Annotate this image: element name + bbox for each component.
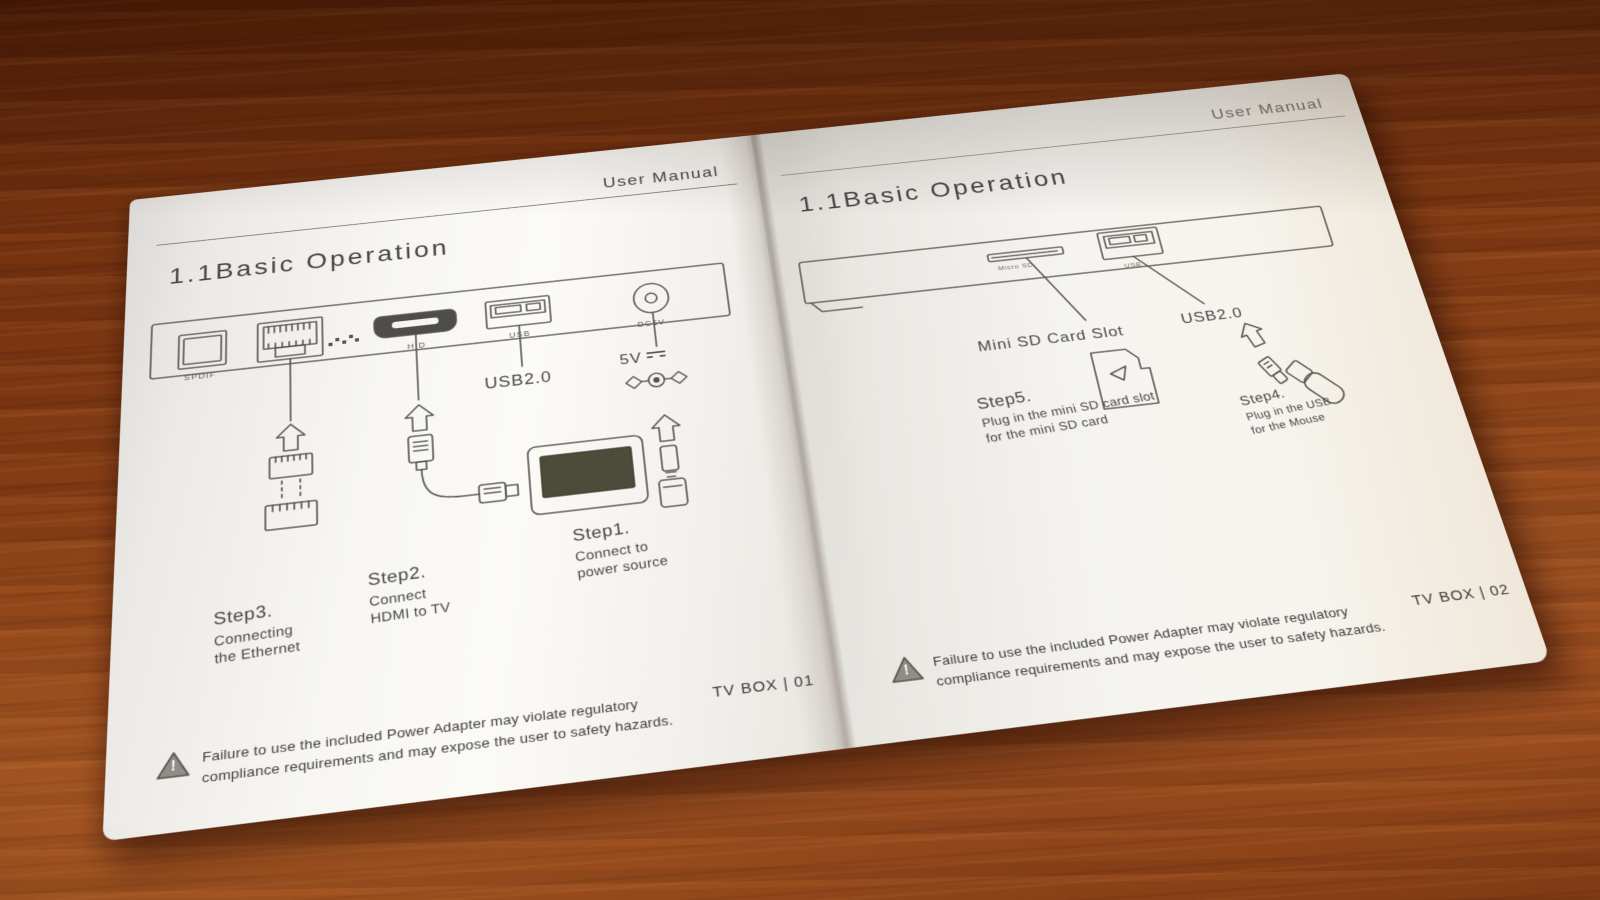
warning-text: Failure to use the included Power Adapte…	[931, 598, 1388, 692]
up-arrow-icon	[277, 423, 305, 452]
section-title: 1.1Basic Operation	[169, 235, 450, 290]
warning-triangle-icon: !	[156, 748, 190, 780]
usb-plug-icon	[1258, 356, 1290, 385]
sd-leader-line	[1026, 253, 1085, 325]
manual-page-left: User Manual 1.1Basic Operation	[103, 135, 844, 841]
power-plug-icon	[655, 444, 688, 507]
spdif-port	[178, 331, 226, 370]
step2-block: Step2. Connect HDMI to TV	[367, 559, 451, 628]
micro-sd-slot	[987, 247, 1063, 262]
up-arrow-icon	[651, 413, 682, 442]
hdmi-cable-icon	[408, 425, 519, 511]
warning-text: Failure to use the included Power Adapte…	[202, 690, 674, 789]
page-number: TV BOX | 01	[712, 672, 816, 701]
vent-dots	[328, 334, 359, 346]
ethernet-port	[258, 317, 323, 362]
tv-box-side-panel	[799, 206, 1333, 304]
warning-triangle-icon: !	[888, 653, 924, 683]
footer-warning: ! Failure to use the included Power Adap…	[156, 690, 674, 795]
tv-icon	[527, 435, 648, 515]
up-arrow-icon	[405, 403, 434, 432]
step1-block: Step1. Connect to power source	[571, 513, 669, 582]
ethernet-plug-icon	[265, 453, 317, 531]
usb-leader-line	[1133, 250, 1204, 310]
page-number: TV BOX | 02	[1410, 581, 1512, 609]
dc-polarity-icon	[625, 370, 687, 390]
footer-warning: ! Failure to use the included Power Adap…	[888, 598, 1388, 697]
usb-port	[1097, 227, 1163, 260]
page-header: User Manual	[602, 164, 720, 192]
dc-symbol-icon	[646, 350, 665, 358]
usb-port	[485, 295, 551, 328]
step3-block: Step3. Connecting the Ethernet	[213, 597, 300, 668]
rear-panel-diagram	[128, 249, 778, 603]
voltage-label: 5V	[619, 350, 643, 369]
dc-jack	[632, 282, 670, 314]
photo-scene: User Manual 1.1Basic Operation	[0, 0, 1600, 900]
up-arrow-icon	[1235, 319, 1270, 349]
